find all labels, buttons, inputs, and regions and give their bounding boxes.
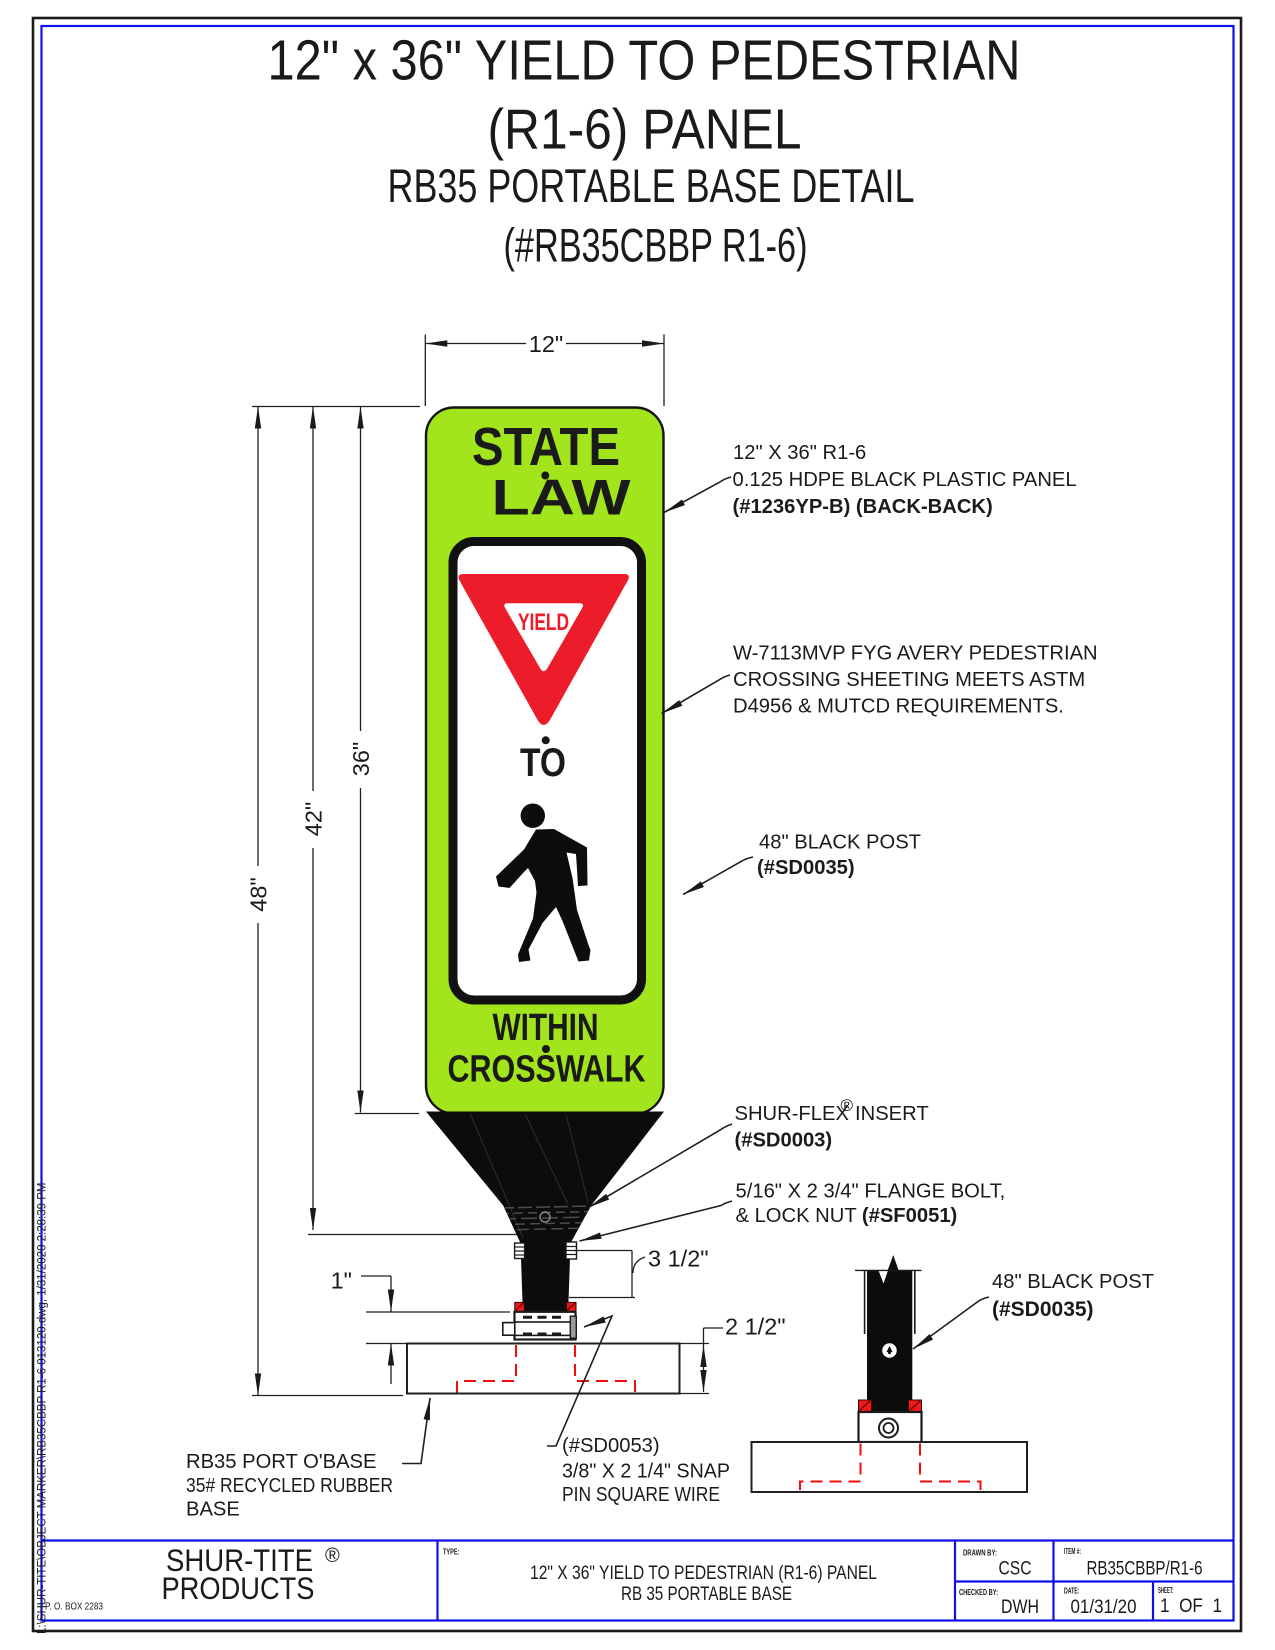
svg-text:CROSSING SHEETING MEETS ASTM: CROSSING SHEETING MEETS ASTM <box>733 669 1085 691</box>
svg-text:DATE:: DATE: <box>1064 1587 1080 1596</box>
svg-text:TO: TO <box>520 741 566 785</box>
svg-text:BASE: BASE <box>186 1499 240 1521</box>
svg-text:TYPE:: TYPE: <box>443 1548 460 1557</box>
svg-text:(#SD0003): (#SD0003) <box>735 1130 833 1152</box>
svg-text:12" x 36" YIELD TO PEDESTRIAN: 12" x 36" YIELD TO PEDESTRIAN <box>268 29 1021 93</box>
svg-text:STATE: STATE <box>472 418 620 477</box>
svg-text:WITHIN: WITHIN <box>493 1007 599 1049</box>
svg-text:INSERT: INSERT <box>855 1103 929 1125</box>
svg-text:12": 12" <box>529 331 563 357</box>
svg-text:CHECKED BY:: CHECKED BY: <box>959 1588 998 1597</box>
svg-text:12" X 36" R1-6: 12" X 36" R1-6 <box>733 442 866 464</box>
svg-text:35# RECYCLED RUBBER: 35# RECYCLED RUBBER <box>186 1475 393 1497</box>
svg-text:P. O. BOX 2283: P. O. BOX 2283 <box>45 1601 103 1613</box>
svg-text:D4956 & MUTCD REQUIREMENTS.: D4956 & MUTCD REQUIREMENTS. <box>733 696 1064 718</box>
svg-text:36": 36" <box>348 742 374 776</box>
svg-text:SHEET:: SHEET: <box>1158 1586 1174 1595</box>
svg-text:& LOCK NUT (#SF0051): & LOCK NUT (#SF0051) <box>736 1205 958 1227</box>
svg-text:0.125 HDPE BLACK PLASTIC PANEL: 0.125 HDPE BLACK PLASTIC PANEL <box>733 469 1077 491</box>
svg-text:42": 42" <box>301 802 327 836</box>
svg-text:®: ® <box>325 1545 340 1567</box>
svg-text:RB35 PORTABLE BASE DETAIL: RB35 PORTABLE BASE DETAIL <box>388 159 915 212</box>
svg-text:YIELD: YIELD <box>518 609 569 636</box>
svg-text:SHUR-FLEX: SHUR-FLEX <box>735 1103 850 1125</box>
svg-text:LAW: LAW <box>492 470 632 526</box>
svg-text:12" X 36" YIELD TO PEDESTRIAN: 12" X 36" YIELD TO PEDESTRIAN (R1-6) PAN… <box>530 1562 877 1584</box>
svg-text:3/8" X 2 1/4" SNAP: 3/8" X 2 1/4" SNAP <box>562 1461 730 1483</box>
svg-text:PRODUCTS: PRODUCTS <box>162 1570 315 1606</box>
svg-text:®: ® <box>841 1096 854 1115</box>
svg-text:DRAWN BY:: DRAWN BY: <box>963 1549 997 1558</box>
svg-text:DWH: DWH <box>1001 1596 1039 1618</box>
svg-text:(R1-6) PANEL: (R1-6) PANEL <box>488 98 802 162</box>
svg-text:ITEM #:: ITEM #: <box>1064 1547 1081 1556</box>
svg-text:2 1/2": 2 1/2" <box>725 1314 786 1340</box>
svg-text:(#SD0035): (#SD0035) <box>757 857 855 879</box>
svg-text:CROSSWALK: CROSSWALK <box>448 1049 646 1091</box>
svg-text:RB 35 PORTABLE BASE: RB 35 PORTABLE BASE <box>621 1583 792 1605</box>
svg-text:(#RB35CBBP R1-6): (#RB35CBBP R1-6) <box>504 219 808 272</box>
svg-text:L:\SHUR-TITE\OBJECT MARKER\RB3: L:\SHUR-TITE\OBJECT MARKER\RB35CBBP R1-6… <box>37 1183 49 1634</box>
svg-text:1 OF 1: 1 OF 1 <box>1160 1595 1222 1617</box>
svg-text:5/16" X 2 3/4" FLANGE BOLT,: 5/16" X 2 3/4" FLANGE BOLT, <box>736 1181 1006 1203</box>
svg-text:1": 1" <box>331 1268 352 1294</box>
svg-text:3 1/2": 3 1/2" <box>648 1246 709 1272</box>
svg-text:W-7113MVP FYG AVERY PEDESTRIAN: W-7113MVP FYG AVERY PEDESTRIAN <box>733 643 1098 665</box>
svg-text:(#1236YP-B) (BACK-BACK): (#1236YP-B) (BACK-BACK) <box>733 496 993 518</box>
svg-text:PIN SQUARE WIRE: PIN SQUARE WIRE <box>562 1484 720 1506</box>
svg-text:(#SD0035): (#SD0035) <box>992 1298 1094 1321</box>
svg-text:01/31/20: 01/31/20 <box>1071 1596 1137 1618</box>
svg-text:(#SD0053): (#SD0053) <box>562 1435 660 1457</box>
svg-text:48": 48" <box>246 877 272 911</box>
svg-text:48" BLACK POST: 48" BLACK POST <box>992 1271 1154 1293</box>
svg-text:RB35CBBP/R1-6: RB35CBBP/R1-6 <box>1087 1558 1203 1580</box>
svg-text:RB35 PORT O'BASE: RB35 PORT O'BASE <box>186 1451 376 1473</box>
svg-text:48" BLACK POST: 48" BLACK POST <box>759 832 921 854</box>
svg-text:CSC: CSC <box>999 1558 1032 1580</box>
